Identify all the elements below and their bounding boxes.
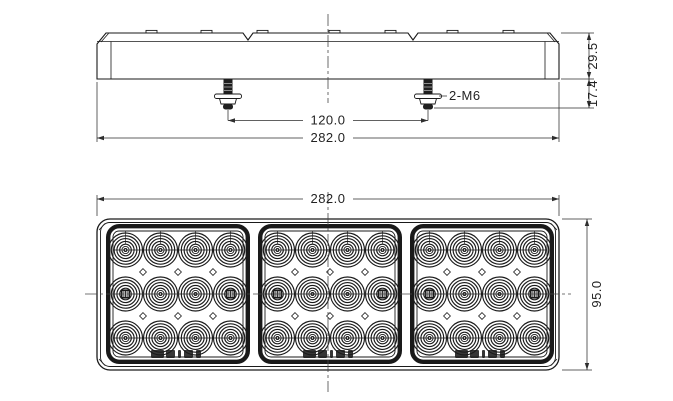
led-lens <box>366 321 400 355</box>
mounting-stud-right <box>415 79 442 121</box>
corner-chamfer-right <box>545 34 555 80</box>
led-lens <box>261 321 295 355</box>
panel-marking <box>166 350 175 358</box>
panel-marking <box>330 350 333 358</box>
led-lens <box>518 321 552 355</box>
panel-marking <box>482 350 485 358</box>
led-lens <box>448 321 482 355</box>
dimension-front-height-label: 95.0 <box>589 280 604 307</box>
led-lens <box>144 321 178 355</box>
dimension-body-height-label: 29.5 <box>585 42 600 69</box>
led-lens <box>179 233 213 267</box>
corner-chamfer-left <box>101 34 111 80</box>
panel-marking <box>151 350 164 358</box>
dimension-front-width-label: 282.0 <box>310 191 345 206</box>
panel-marking <box>336 350 345 358</box>
technical-drawing-canvas: 2-M6 120.0 282.0 29.5 17.4 <box>0 0 673 401</box>
stud-callout-label: 2-M6 <box>449 88 481 103</box>
led-lens <box>413 321 447 355</box>
panel-marking <box>178 350 181 358</box>
technical-drawing: 2-M6 120.0 282.0 29.5 17.4 <box>0 0 673 401</box>
panel-marking <box>488 350 497 358</box>
mounting-stud-left <box>215 79 242 121</box>
led-lens <box>144 233 178 267</box>
panel-marking <box>500 350 505 358</box>
led-lens <box>483 321 517 355</box>
led-lens <box>413 233 447 267</box>
led-lens <box>179 321 213 355</box>
panel-marking <box>455 350 468 358</box>
dimension-front-overall-width: 282.0 <box>97 191 559 216</box>
dimension-front-overall-height: 95.0 <box>562 219 604 370</box>
panel-marking <box>184 350 193 358</box>
led-lens <box>483 233 517 267</box>
led-lens <box>214 321 248 355</box>
led-lens <box>214 233 248 267</box>
led-lens <box>109 233 143 267</box>
led-lens <box>331 321 365 355</box>
led-lens <box>261 233 295 267</box>
led-lens <box>109 321 143 355</box>
front-face-view: 282.0 95.0 <box>85 191 604 392</box>
panel-marking <box>470 350 479 358</box>
panel-marking <box>348 350 353 358</box>
side-profile-view: 2-M6 120.0 282.0 29.5 17.4 <box>97 14 600 145</box>
dimension-bolt-spacing: 120.0 <box>228 113 428 128</box>
led-lens <box>366 233 400 267</box>
led-lens <box>518 233 552 267</box>
panel-marking <box>303 350 316 358</box>
dimension-stud-length-label: 17.4 <box>585 80 600 107</box>
dimension-bolt-spacing-label: 120.0 <box>310 113 345 128</box>
led-lens <box>331 233 365 267</box>
panel-marking <box>318 350 327 358</box>
led-lens <box>296 233 330 267</box>
led-lens <box>296 321 330 355</box>
dimension-side-width-label: 282.0 <box>310 130 345 145</box>
led-lens <box>448 233 482 267</box>
panel-marking <box>196 350 201 358</box>
